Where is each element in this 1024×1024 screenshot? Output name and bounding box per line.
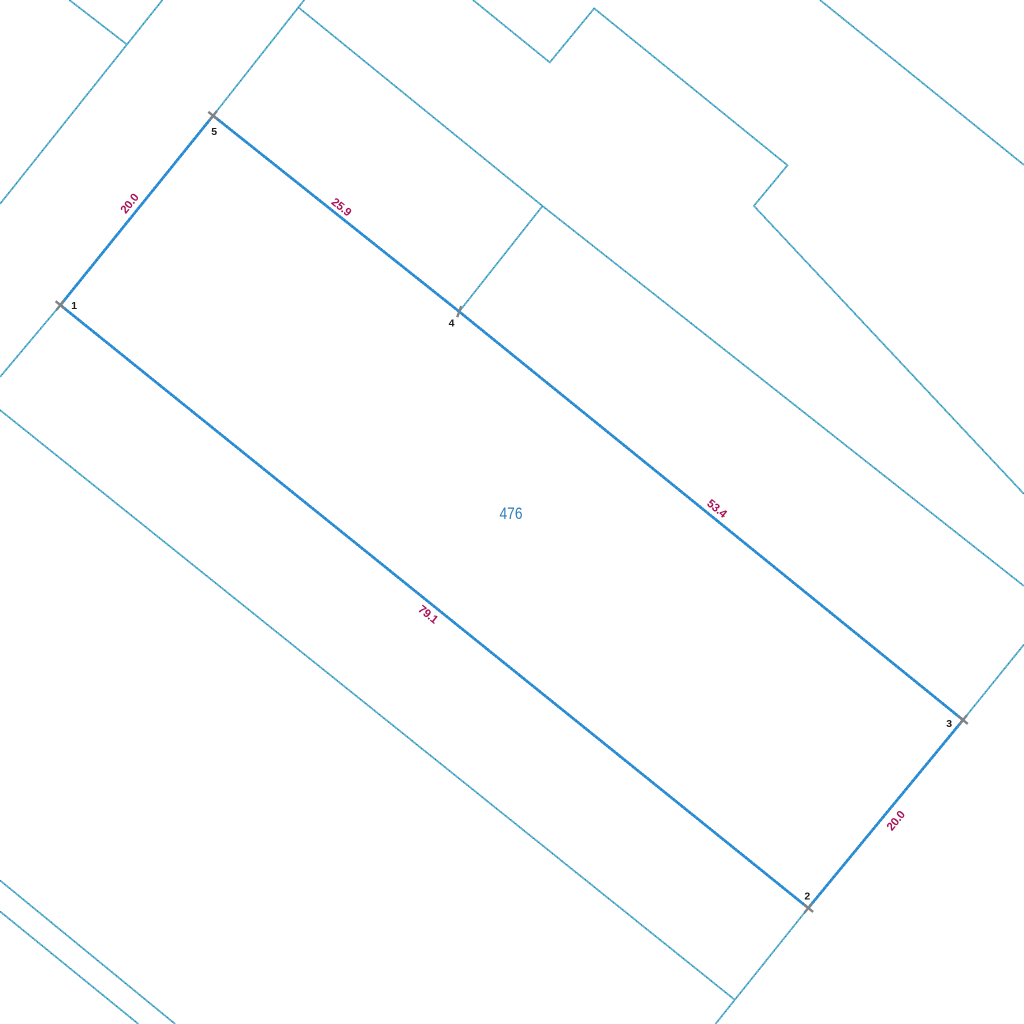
svg-text:476: 476 bbox=[500, 505, 523, 524]
svg-text:3: 3 bbox=[946, 718, 952, 730]
svg-text:2: 2 bbox=[804, 890, 810, 902]
svg-text:5: 5 bbox=[211, 126, 217, 138]
svg-text:20.0: 20.0 bbox=[119, 192, 142, 216]
svg-text:25.9: 25.9 bbox=[329, 196, 353, 219]
svg-text:1: 1 bbox=[71, 300, 77, 312]
svg-text:4: 4 bbox=[449, 318, 455, 330]
svg-text:53.4: 53.4 bbox=[704, 498, 729, 521]
